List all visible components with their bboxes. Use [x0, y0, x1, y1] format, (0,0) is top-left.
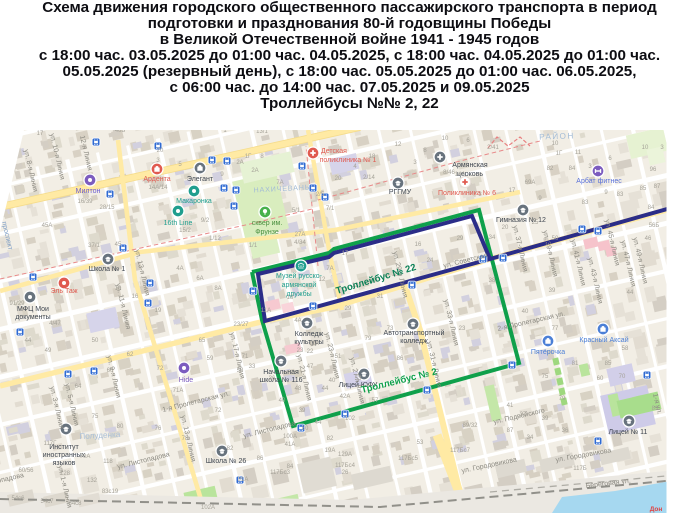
- svg-text:Красный Аксай: Красный Аксай: [579, 336, 628, 344]
- svg-text:45: 45: [115, 242, 122, 248]
- svg-text:Колледж: Колледж: [295, 331, 324, 338]
- svg-text:129А: 129А: [338, 452, 352, 458]
- svg-text:19: 19: [155, 308, 162, 314]
- svg-text:44: 44: [627, 290, 634, 296]
- svg-text:85: 85: [640, 186, 647, 192]
- svg-text:20: 20: [502, 225, 509, 231]
- svg-text:75: 75: [542, 374, 549, 380]
- svg-text:39: 39: [299, 408, 306, 414]
- svg-text:6А: 6А: [196, 276, 203, 282]
- svg-text:29: 29: [345, 306, 352, 312]
- svg-text:15/2: 15/2: [179, 228, 191, 234]
- svg-text:22: 22: [307, 349, 314, 355]
- svg-text:16/39: 16/39: [77, 199, 93, 205]
- svg-text:117Бс4: 117Бс4: [335, 463, 356, 469]
- svg-text:87: 87: [654, 184, 661, 190]
- svg-text:72: 72: [157, 366, 164, 372]
- svg-text:Лицей № 11: Лицей № 11: [609, 428, 648, 436]
- svg-text:25: 25: [532, 220, 539, 226]
- svg-text:86: 86: [257, 456, 264, 462]
- svg-text:Пятёрочка: Пятёрочка: [531, 349, 565, 356]
- svg-text:23/27: 23/27: [233, 322, 249, 328]
- svg-text:47: 47: [307, 364, 314, 370]
- svg-text:26: 26: [342, 470, 349, 476]
- svg-text:Армянская: Армянская: [452, 162, 488, 169]
- svg-text:РАЙОН: РАЙОН: [539, 130, 575, 142]
- svg-text:Музей русско-: Музей русско-: [276, 272, 323, 280]
- svg-text:МФЦ Мои: МФЦ Мои: [17, 306, 49, 313]
- svg-text:Милтон: Милтон: [76, 188, 101, 195]
- svg-text:91А: 91А: [238, 477, 249, 483]
- svg-text:82: 82: [227, 446, 234, 452]
- svg-text:70А: 70А: [80, 454, 91, 460]
- svg-text:83с19: 83с19: [102, 489, 119, 495]
- svg-text:49: 49: [45, 348, 52, 354]
- svg-text:75: 75: [92, 414, 99, 420]
- svg-text:Школа № 1: Школа № 1: [89, 266, 126, 273]
- svg-text:91/29: 91/29: [9, 301, 25, 307]
- svg-text:53: 53: [417, 440, 424, 446]
- svg-text:46: 46: [645, 236, 652, 242]
- svg-text:2А: 2А: [236, 160, 243, 166]
- svg-text:102А: 102А: [201, 505, 215, 511]
- svg-text:Ардента: Ардента: [143, 176, 170, 183]
- svg-text:4А: 4А: [294, 318, 301, 324]
- svg-text:2/5: 2/5: [316, 192, 325, 198]
- svg-text:1Г: 1Г: [556, 151, 563, 157]
- svg-text:60/56: 60/56: [18, 468, 34, 474]
- svg-text:армянской: армянской: [282, 281, 317, 289]
- svg-text:82: 82: [327, 436, 334, 442]
- svg-text:17: 17: [342, 251, 349, 257]
- svg-text:4А: 4А: [176, 266, 183, 272]
- svg-text:Hide: Hide: [179, 377, 194, 384]
- svg-text:24: 24: [427, 258, 434, 264]
- svg-text:11А: 11А: [309, 341, 319, 347]
- svg-text:117Бс7: 117Бс7: [450, 448, 471, 454]
- svg-text:2/14: 2/14: [363, 175, 375, 181]
- svg-text:1Г: 1Г: [245, 154, 252, 160]
- svg-text:50: 50: [552, 236, 559, 242]
- svg-text:4/47: 4/47: [49, 321, 61, 327]
- svg-text:69А: 69А: [525, 180, 536, 186]
- svg-text:79: 79: [365, 336, 372, 342]
- svg-text:2А: 2А: [251, 168, 258, 174]
- svg-text:Детская: Детская: [321, 148, 347, 155]
- svg-text:Гимназия № 12: Гимназия № 12: [496, 217, 546, 224]
- svg-text:87: 87: [507, 428, 514, 434]
- svg-text:48: 48: [295, 386, 302, 392]
- svg-text:40: 40: [329, 378, 336, 384]
- svg-text:33: 33: [249, 364, 256, 370]
- svg-text:53: 53: [355, 376, 362, 382]
- svg-text:11: 11: [575, 150, 582, 156]
- svg-text:сквер им.: сквер им.: [252, 220, 283, 227]
- svg-text:54с6: 54с6: [11, 496, 25, 502]
- svg-text:65: 65: [199, 338, 206, 344]
- svg-text:5/1: 5/1: [292, 208, 301, 214]
- svg-text:12: 12: [319, 277, 326, 283]
- svg-text:41: 41: [507, 403, 514, 409]
- svg-text:17: 17: [509, 188, 516, 194]
- svg-text:7/1: 7/1: [326, 206, 335, 212]
- svg-text:37/1: 37/1: [88, 243, 100, 249]
- svg-text:45А: 45А: [42, 223, 53, 229]
- svg-text:44: 44: [322, 386, 329, 392]
- svg-text:17: 17: [37, 131, 44, 137]
- svg-text:10: 10: [442, 136, 449, 142]
- svg-text:23: 23: [459, 326, 466, 332]
- svg-text:14А/14: 14А/14: [148, 185, 168, 191]
- svg-text:54с7: 54с7: [40, 499, 54, 505]
- svg-text:79: 79: [559, 396, 566, 402]
- svg-text:12: 12: [395, 142, 402, 148]
- svg-text:64: 64: [75, 384, 82, 390]
- svg-text:колледж: колледж: [400, 338, 428, 345]
- svg-text:РГГМУ: РГГМУ: [389, 189, 412, 196]
- svg-text:118: 118: [103, 459, 113, 465]
- svg-text:132: 132: [87, 478, 98, 484]
- svg-text:20: 20: [157, 148, 164, 154]
- svg-text:76: 76: [155, 426, 162, 432]
- svg-text:18: 18: [369, 154, 376, 160]
- svg-text:4/34: 4/34: [294, 240, 306, 246]
- svg-text:80: 80: [117, 424, 124, 430]
- svg-text:57: 57: [372, 398, 379, 404]
- svg-text:школа № 116: школа № 116: [259, 377, 302, 384]
- svg-text:10: 10: [642, 145, 649, 151]
- svg-text:31: 31: [377, 294, 384, 300]
- svg-text:10: 10: [552, 141, 559, 147]
- svg-text:8А: 8А: [214, 286, 221, 292]
- svg-text:16: 16: [132, 294, 139, 300]
- svg-text:83: 83: [582, 200, 589, 206]
- svg-text:117Бс5: 117Бс5: [398, 456, 419, 462]
- svg-text:58: 58: [237, 368, 244, 374]
- svg-text:29: 29: [457, 236, 464, 242]
- svg-text:28/15: 28/15: [99, 205, 115, 211]
- svg-text:83: 83: [617, 192, 624, 198]
- svg-text:39: 39: [549, 288, 556, 294]
- svg-text:38: 38: [489, 278, 496, 284]
- svg-text:46Б: 46Б: [115, 130, 126, 134]
- svg-text:36: 36: [269, 376, 276, 382]
- svg-text:128: 128: [60, 471, 71, 477]
- svg-text:80: 80: [302, 426, 309, 432]
- svg-text:19А: 19А: [325, 448, 336, 454]
- svg-text:23: 23: [297, 348, 304, 354]
- svg-text:27А: 27А: [295, 232, 306, 238]
- svg-text:85: 85: [605, 361, 612, 367]
- svg-text:7А: 7А: [276, 180, 283, 186]
- svg-text:37: 37: [520, 412, 527, 418]
- svg-text:20: 20: [335, 176, 342, 182]
- svg-text:71А: 71А: [173, 388, 184, 394]
- svg-text:72: 72: [215, 408, 222, 414]
- svg-text:54с8: 54с8: [68, 501, 82, 507]
- svg-text:Начальная: Начальная: [263, 369, 299, 376]
- svg-text:42А: 42А: [340, 394, 351, 400]
- svg-text:117Г: 117Г: [44, 441, 58, 447]
- svg-text:117Бс3: 117Бс3: [270, 470, 291, 476]
- svg-text:78: 78: [182, 436, 189, 442]
- svg-text:60: 60: [107, 368, 114, 374]
- svg-text:50: 50: [92, 338, 99, 344]
- svg-text:100А: 100А: [283, 434, 297, 440]
- svg-text:Дон: Дон: [650, 506, 663, 513]
- svg-text:62: 62: [127, 352, 134, 358]
- svg-text:Элегант: Элегант: [187, 176, 214, 183]
- svg-text:34: 34: [489, 235, 496, 241]
- svg-text:39: 39: [542, 416, 549, 422]
- svg-text:44: 44: [25, 338, 32, 344]
- svg-text:1/12: 1/12: [209, 236, 221, 242]
- svg-text:9/2: 9/2: [201, 218, 210, 224]
- svg-text:36: 36: [562, 428, 569, 434]
- svg-text:41А: 41А: [285, 442, 296, 448]
- svg-text:56Б: 56Б: [649, 223, 660, 229]
- svg-text:73: 73: [387, 326, 394, 332]
- svg-text:16: 16: [415, 242, 422, 248]
- svg-text:7А: 7А: [326, 266, 333, 272]
- svg-text:58: 58: [622, 346, 629, 352]
- svg-text:102: 102: [345, 416, 356, 422]
- svg-text:Эль Таж: Эль Таж: [50, 288, 77, 295]
- svg-text:документы: документы: [15, 314, 50, 321]
- svg-text:59: 59: [207, 356, 214, 362]
- svg-text:Школа № 26: Школа № 26: [206, 458, 247, 465]
- svg-text:40: 40: [279, 398, 286, 404]
- svg-text:8/46: 8/46: [443, 170, 455, 176]
- svg-text:81: 81: [572, 361, 579, 367]
- svg-text:117Б: 117Б: [573, 466, 587, 472]
- svg-text:Фрунзе: Фрунзе: [255, 229, 279, 236]
- svg-text:70: 70: [619, 374, 626, 380]
- svg-text:10: 10: [115, 286, 122, 292]
- svg-text:13/1: 13/1: [256, 130, 268, 135]
- svg-text:40: 40: [522, 309, 529, 315]
- svg-text:86: 86: [397, 356, 404, 362]
- svg-text:Арбат фитнес: Арбат фитнес: [576, 177, 622, 185]
- svg-text:89/32: 89/32: [462, 423, 478, 429]
- svg-text:34: 34: [527, 435, 534, 441]
- svg-text:Поликлиника № 6: Поликлиника № 6: [438, 190, 496, 197]
- svg-text:84: 84: [287, 464, 294, 470]
- svg-text:14А: 14А: [455, 172, 466, 178]
- svg-text:82: 82: [547, 166, 554, 172]
- svg-text:83: 83: [652, 406, 659, 412]
- svg-text:Макаронка: Макаронка: [176, 198, 212, 205]
- svg-text:16th Line: 16th Line: [164, 220, 193, 227]
- svg-text:11А: 11А: [261, 308, 271, 314]
- svg-text:18: 18: [287, 295, 294, 301]
- svg-text:2/41: 2/41: [487, 145, 499, 151]
- svg-text:84: 84: [569, 166, 576, 172]
- svg-text:71: 71: [242, 354, 249, 360]
- svg-text:77: 77: [552, 326, 559, 332]
- svg-text:60: 60: [597, 376, 604, 382]
- svg-text:96: 96: [650, 167, 657, 173]
- svg-text:44: 44: [315, 420, 322, 426]
- svg-text:1/1: 1/1: [249, 243, 258, 249]
- svg-text:84: 84: [648, 205, 655, 211]
- svg-text:51: 51: [335, 354, 342, 360]
